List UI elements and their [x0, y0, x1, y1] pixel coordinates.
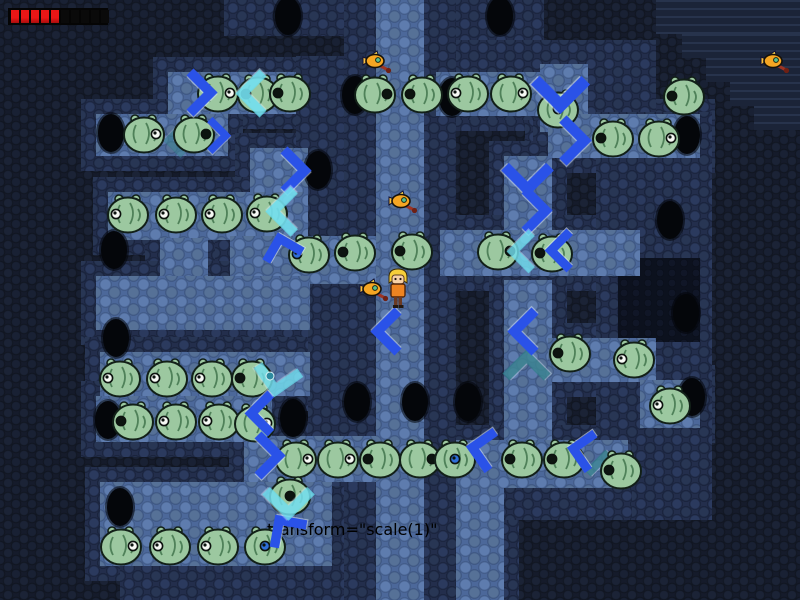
puffer-creature [352, 72, 398, 114]
staircase-step [754, 106, 800, 130]
health-segment-empty [71, 10, 79, 23]
pit-hole [107, 488, 133, 526]
pit-hole [673, 294, 699, 332]
puffer-creature [647, 383, 693, 425]
puffer-creature [110, 399, 156, 441]
health-segment-filled [51, 10, 59, 23]
puffer-creature [199, 192, 245, 234]
health-segment-empty [101, 10, 109, 23]
puffer-creature [98, 524, 144, 566]
floor-area [160, 238, 208, 278]
health-segment-filled [41, 10, 49, 23]
puffer-creature [488, 71, 534, 113]
dart-fish-creature [361, 49, 393, 76]
health-segment-filled [11, 10, 19, 23]
health-bar [8, 8, 108, 25]
health-segment-empty [61, 10, 69, 23]
game-viewport[interactable]: transform="scale(1)" [0, 0, 800, 600]
health-segment-filled [21, 10, 29, 23]
health-segment-filled [31, 10, 39, 23]
pit-hole [657, 201, 683, 239]
pit-hole [455, 383, 481, 421]
pit-hole [402, 383, 428, 421]
floor-area [96, 276, 310, 330]
puffer-creature [97, 356, 143, 398]
staircase-step [730, 82, 800, 106]
puffer-creature [661, 74, 707, 116]
puffer-creature [105, 192, 151, 234]
puffer-creature [636, 116, 682, 158]
puffer-creature [153, 192, 199, 234]
dart-fish-creature [387, 189, 419, 216]
puffer-creature [147, 524, 193, 566]
health-segment-empty [91, 10, 99, 23]
puffer-creature [445, 71, 491, 113]
pit-hole [101, 231, 127, 269]
puffer-creature [144, 356, 190, 398]
puffer-creature [195, 524, 241, 566]
puffer-creature [153, 399, 199, 441]
puffer-creature [611, 337, 657, 379]
dart-fish-creature [759, 49, 791, 76]
health-segment-empty [81, 10, 89, 23]
puffer-creature [315, 437, 361, 479]
player-character [385, 267, 411, 311]
puffer-creature [332, 230, 378, 272]
puffer-creature [590, 116, 636, 158]
puffer-creature [399, 72, 445, 114]
puffer-creature [121, 112, 167, 154]
puffer-creature [547, 331, 593, 373]
puffer-creature [389, 229, 435, 271]
pit-hole [344, 383, 370, 421]
orb-marker [265, 366, 275, 376]
staircase-step [656, 0, 800, 34]
pit-hole [103, 319, 129, 357]
